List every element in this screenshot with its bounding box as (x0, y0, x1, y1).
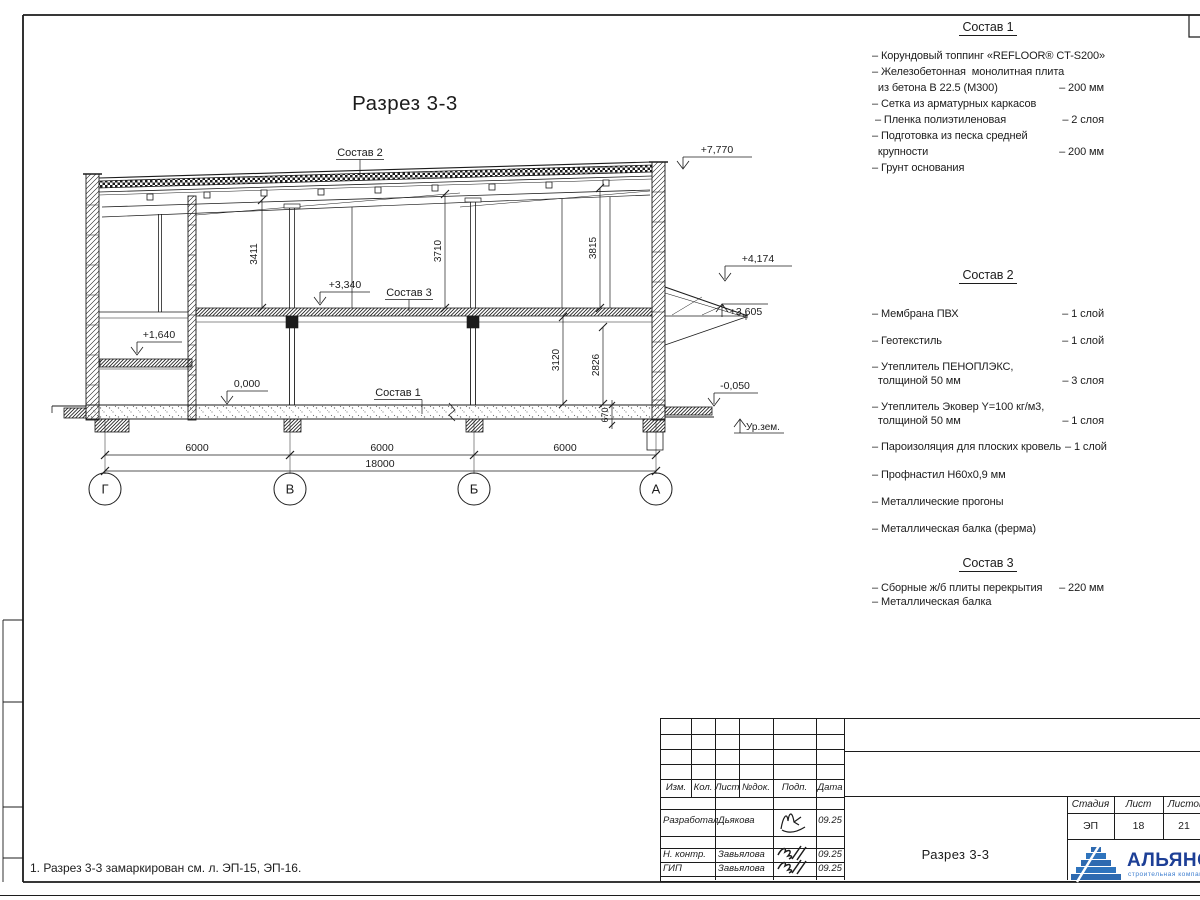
logo-name: АЛЬЯНС (1127, 850, 1200, 871)
spec-line: из бетона В 22.5 (М300)– 200 мм (872, 80, 1104, 96)
spec-text: – Утеплитель Эковер Y=100 кг/м3, (872, 401, 1044, 415)
dim-h1: 3411 (249, 243, 260, 265)
stamp-sheets-value: 21 (1163, 820, 1200, 832)
spec-text: – Сборные ж/б плиты перекрытия (872, 582, 1042, 596)
spec-value (1100, 160, 1104, 176)
mezzanine-slab (99, 308, 652, 328)
logo-pyramid-icon (1071, 844, 1121, 882)
spec-sostav-3: Состав 3 – Сборные ж/б плиты перекрытия–… (872, 556, 1104, 609)
spec3-title-text: Состав 3 (959, 556, 1016, 572)
spec-line: – Мембрана ПВХ– 1 слой (872, 308, 1104, 322)
spec-value: – 2 слоя (1058, 112, 1104, 128)
stamp-role-developer: Разработал (663, 815, 718, 826)
level-mezzanine: +3,340 (329, 279, 362, 291)
dimensions (89, 184, 672, 505)
spec-value: – 3 слоя (1058, 375, 1104, 389)
drawing-sheet: +7,770 +4,174 +3,605 +3,340 +1,640 0,000… (0, 0, 1200, 900)
stamp-date-developer: 09.25 (816, 815, 844, 826)
spec-line: – Пароизоляция для плоских кровель– 1 сл… (872, 441, 1104, 455)
stamp-date-ncontrol: 09.25 (816, 849, 844, 860)
corner-box (1189, 15, 1200, 37)
spec-line: – Грунт основания (872, 160, 1104, 176)
axis-label-b: Б (470, 482, 479, 497)
company-logo: АЛЬЯНС строительная компания (1069, 841, 1200, 883)
level-roof: +7,770 (701, 144, 734, 156)
dim-bay2: 6000 (370, 442, 394, 454)
dim-bay1: 6000 (185, 442, 209, 454)
dim-h5: 2826 (591, 353, 602, 376)
axis-label-v: В (286, 482, 295, 497)
stamp-stage-col: Стадия (1067, 799, 1114, 810)
spec-sostav-2: Состав 2 – Мембрана ПВХ– 1 слой – Геотек… (872, 268, 1104, 536)
stamp-col-kol: Кол. (691, 782, 715, 793)
spec-value (1100, 596, 1104, 610)
stamp-col-podp: Подп. (773, 782, 816, 793)
spec-text: – Металлическая балка (ферма) (872, 523, 1036, 537)
spec-text: крупности (872, 144, 928, 160)
spec-text: – Металлические прогоны (872, 496, 1003, 510)
stamp-sheet-value: 18 (1114, 820, 1163, 832)
signature-developer (775, 807, 813, 835)
spec-line: – Геотекстиль– 1 слой (872, 335, 1104, 349)
stamp-doc-title: Разрез 3-3 (844, 847, 1067, 862)
spec-text: – Мембрана ПВХ (872, 308, 959, 322)
callout-sostav2: Состав 2 (337, 147, 383, 159)
callout-sostav3: Состав 3 (386, 287, 432, 299)
spec-line: крупности– 200 мм (872, 144, 1104, 160)
spec-line: – Металлическая балка (ферма) (872, 523, 1104, 537)
spec-line: – Металлическая балка (872, 596, 1104, 610)
spec-value: – 200 мм (1055, 144, 1104, 160)
spec-value (1100, 64, 1104, 80)
spec-text: – Подготовка из песка средней (872, 128, 1028, 144)
spec2-title-text: Состав 2 (959, 268, 1016, 284)
dim-bay3: 6000 (553, 442, 577, 454)
level-left-slab: +1,640 (143, 329, 176, 341)
dim-h3: 3815 (588, 236, 599, 259)
level-canopy-top: +4,174 (742, 253, 775, 265)
stamp-name-ncontrol: Завьялова (718, 849, 765, 860)
spec-text: – Пароизоляция для плоских кровель (872, 441, 1061, 455)
signature-gip (775, 858, 813, 875)
inner-wall (188, 196, 196, 420)
upper-columns (159, 197, 611, 312)
stamp-name-developer: Дьякова (718, 815, 755, 826)
spec-line: – Утеплитель ПЕНОПЛЭКС, (872, 361, 1104, 375)
spec-text: – Геотекстиль (872, 335, 942, 349)
left-slab (100, 359, 192, 367)
axis-label-g: Г (101, 482, 108, 497)
spec2-title: Состав 2 (872, 268, 1104, 282)
spec-line: – Пленка полиэтиленовая– 2 слоя (872, 112, 1104, 128)
spec-value: – 1 слой (1058, 308, 1104, 322)
stamp-stage-value: ЭП (1067, 820, 1114, 832)
spec-text: – Профнастил Н60х0,9 мм (872, 469, 1006, 483)
spec-value (1105, 48, 1109, 64)
spec-text: из бетона В 22.5 (М300) (872, 80, 998, 96)
stamp-col-dok: №док. (739, 782, 773, 793)
logo-tagline: строительная компания (1128, 871, 1200, 878)
left-wall (86, 174, 99, 420)
spec-line: – Корундовый топпинг «REFLOOR® CT-S200» (872, 48, 1104, 64)
stamp-col-list: Лист (715, 782, 739, 793)
stamp-col-izm: Изм. (661, 782, 691, 793)
spec-line: – Утеплитель Эковер Y=100 кг/м3, (872, 401, 1104, 415)
stamp-role-ncontrol: Н. контр. (663, 849, 706, 860)
dim-total: 18000 (365, 458, 394, 470)
spec-value (1100, 523, 1104, 537)
spec-line: – Профнастил Н60х0,9 мм (872, 469, 1104, 483)
level-marks (131, 157, 792, 433)
spec-line: – Сетка из арматурных каркасов (872, 96, 1104, 112)
spec-text: – Железобетонная монолитная плита (872, 64, 1064, 80)
spec-value: – 1 слой (1061, 441, 1107, 455)
dim-h6: 670 (600, 407, 610, 422)
title-block: Изм. Кол. Лист №док. Подп. Дата Разработ… (660, 718, 1200, 882)
spec-value (1100, 496, 1104, 510)
spec-value: – 1 слоя (1058, 415, 1104, 429)
drawing-title: Разрез 3-3 (300, 92, 510, 116)
spec-text: толщиной 50 мм (872, 375, 961, 389)
spec-text: – Грунт основания (872, 160, 964, 176)
stamp-sheet-col: Лист (1114, 799, 1163, 810)
stamp-col-data: Дата (816, 782, 844, 793)
stamp-name-gip: Завьялова (718, 863, 765, 874)
callout-sostav1: Состав 1 (375, 387, 421, 399)
spec-text: – Утеплитель ПЕНОПЛЭКС, (872, 361, 1013, 375)
dim-h2: 3710 (433, 239, 444, 262)
dim-h4: 3120 (551, 348, 562, 371)
stamp-sheets-col: Листов (1163, 799, 1200, 810)
spec-value (1100, 469, 1104, 483)
spec-text: – Корундовый топпинг «REFLOOR® CT-S200» (872, 48, 1105, 64)
spec-value: – 200 мм (1055, 80, 1104, 96)
roof (99, 162, 652, 217)
spec-value (1100, 96, 1104, 112)
spec-line: толщиной 50 мм– 3 слоя (872, 375, 1104, 389)
spec-line: – Металлические прогоны (872, 496, 1104, 510)
spec-text: толщиной 50 мм (872, 415, 961, 429)
spec-value: – 1 слой (1058, 335, 1104, 349)
level-zero: 0,000 (234, 378, 260, 390)
spec-value (1100, 401, 1104, 415)
spec-value (1100, 128, 1104, 144)
axis-label-a: А (652, 482, 661, 497)
spec-text: – Пленка полиэтиленовая (872, 112, 1006, 128)
sheet-note: 1. Разрез 3-3 замаркирован см. л. ЭП-15,… (30, 861, 301, 875)
spec-value (1100, 361, 1104, 375)
level-canopy-bottom: +3,605 (730, 306, 763, 318)
level-entry: -0,050 (720, 380, 750, 392)
spec1-title: Состав 1 (872, 20, 1104, 34)
spec-sostav-1: Состав 1 – Корундовый топпинг «REFLOOR® … (872, 20, 1104, 176)
stamp-role-gip: ГИП (663, 863, 682, 874)
spec3-title: Состав 3 (872, 556, 1104, 570)
spec1-title-text: Состав 1 (959, 20, 1016, 36)
spec-text: – Металлическая балка (872, 596, 991, 610)
building-structure (52, 162, 748, 450)
spec-line: – Подготовка из песка средней (872, 128, 1104, 144)
spec-line: – Сборные ж/б плиты перекрытия– 220 мм (872, 582, 1104, 596)
spec-line: толщиной 50 мм– 1 слоя (872, 415, 1104, 429)
right-wall (652, 162, 665, 420)
ground-level-label: Ур.зем. (746, 422, 780, 433)
spec-text: – Сетка из арматурных каркасов (872, 96, 1036, 112)
spec-value: – 220 мм (1055, 582, 1104, 596)
spec-line: – Железобетонная монолитная плита (872, 64, 1104, 80)
stamp-date-gip: 09.25 (816, 863, 844, 874)
